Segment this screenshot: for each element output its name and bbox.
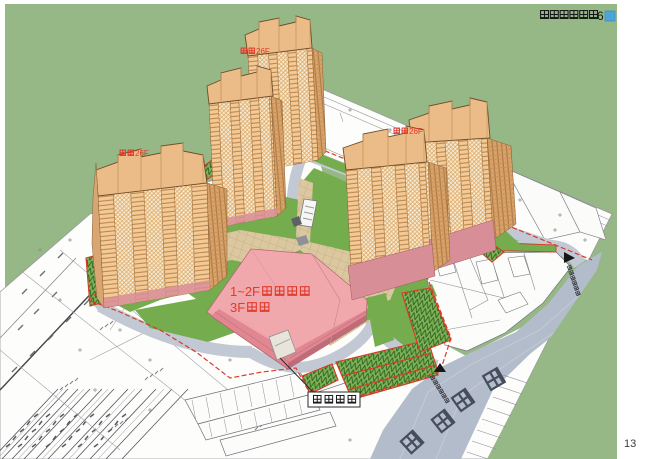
- svg-text:3F: 3F: [230, 300, 245, 315]
- svg-text:26F: 26F: [135, 149, 149, 158]
- svg-text:6: 6: [597, 9, 604, 23]
- svg-text:13: 13: [624, 438, 636, 450]
- svg-text:26F: 26F: [409, 127, 423, 136]
- svg-text:1~2F: 1~2F: [230, 284, 260, 299]
- svg-text:26F: 26F: [256, 47, 270, 56]
